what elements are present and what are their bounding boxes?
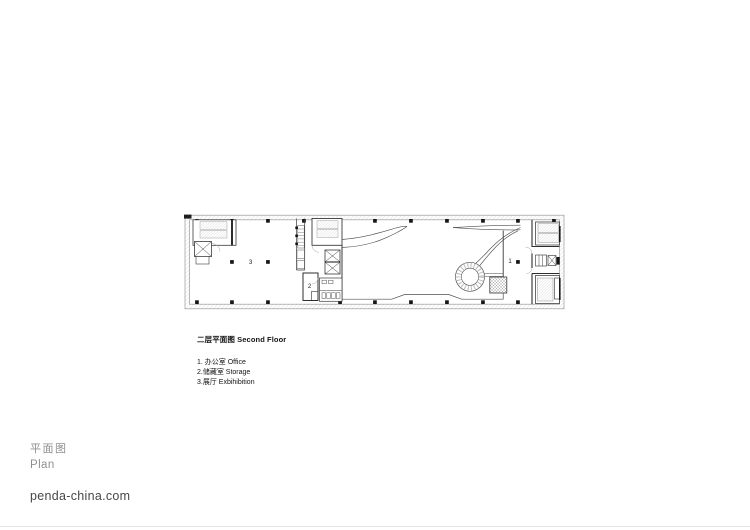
plan-legend: 1. 办公室 Office 2.储藏室 Storage 3.展厅 Exbihib… bbox=[197, 358, 286, 388]
sheet-footer: 平面图 Plan bbox=[30, 443, 68, 472]
legend-item-storage: 2.储藏室 Storage bbox=[197, 368, 286, 378]
perimeter-wall bbox=[184, 215, 564, 309]
footer-title-en: Plan bbox=[30, 458, 68, 472]
plan-caption: 二层平面图 Second Floor 1. 办公室 Office 2.储藏室 S… bbox=[197, 334, 286, 388]
website-text: penda-china.com bbox=[30, 489, 130, 503]
spiral-stair bbox=[456, 262, 485, 291]
legend-item-exhibition: 3.展厅 Exbihibition bbox=[197, 378, 286, 388]
plan-title: 二层平面图 Second Floor bbox=[197, 334, 286, 345]
floor-plan-drawing: 3 2 1 bbox=[183, 212, 567, 312]
bottom-rule bbox=[0, 526, 750, 527]
legend-item-office: 1. 办公室 Office bbox=[197, 358, 286, 368]
presentation-sheet: 3 2 1 二层平面图 Second Floor 1. 办公室 Office 2… bbox=[0, 0, 750, 530]
footer-title-cn: 平面图 bbox=[30, 443, 68, 456]
